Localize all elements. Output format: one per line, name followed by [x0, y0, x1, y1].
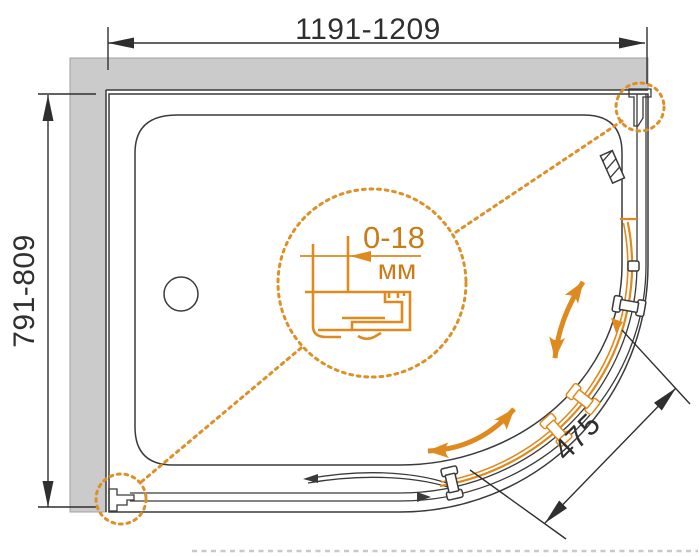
sliding-doors — [303, 150, 646, 500]
adjustment-unit-label: мм — [378, 254, 417, 285]
wall-profile-icon — [109, 489, 134, 511]
slide-arrow-icon — [555, 282, 583, 358]
shower-enclosure-diagram: 1191-1209 791-809 475 — [0, 0, 700, 557]
depth-dimension-label: 791-809 — [8, 234, 41, 348]
drain-icon — [164, 277, 198, 311]
adjustment-range-label: 0-18 — [363, 220, 425, 255]
door-black-edge-2 — [308, 477, 448, 487]
detail-circle — [278, 189, 466, 377]
glass-clamp-icon — [600, 150, 624, 183]
door-stopper-icon — [628, 261, 639, 271]
slide-arrow-icon — [428, 409, 514, 451]
roller-bracket-icon — [441, 466, 464, 501]
door-orange-edge-1 — [440, 222, 632, 486]
width-dimension-label: 1191-1209 — [295, 13, 441, 46]
dimension-entry: 475 — [470, 330, 690, 539]
door-black-tip — [303, 474, 318, 483]
tray-inner-rim — [135, 115, 622, 465]
entry-dimension-label: 475 — [547, 407, 607, 467]
